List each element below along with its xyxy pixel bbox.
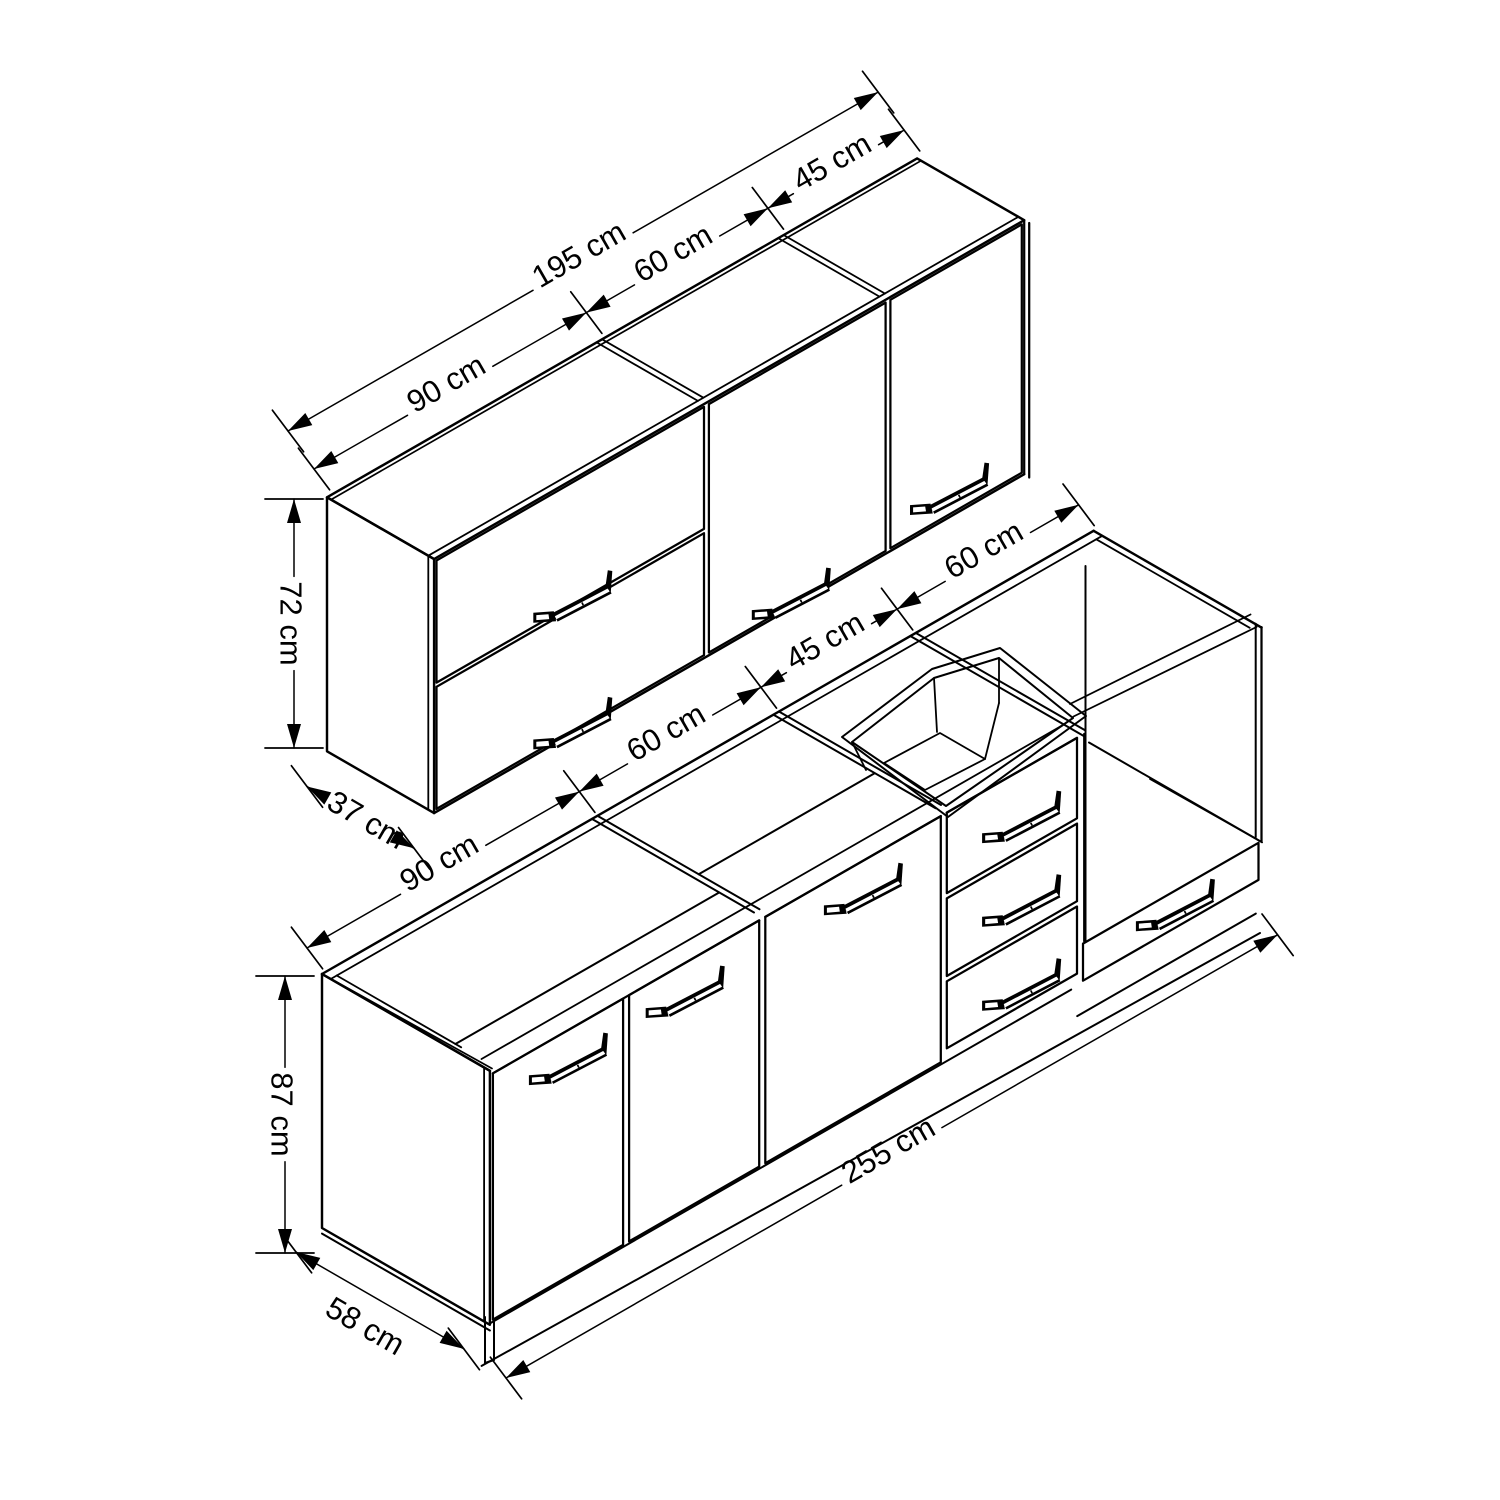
svg-text:87 cm: 87 cm — [265, 1072, 300, 1156]
svg-text:72 cm: 72 cm — [274, 581, 309, 665]
